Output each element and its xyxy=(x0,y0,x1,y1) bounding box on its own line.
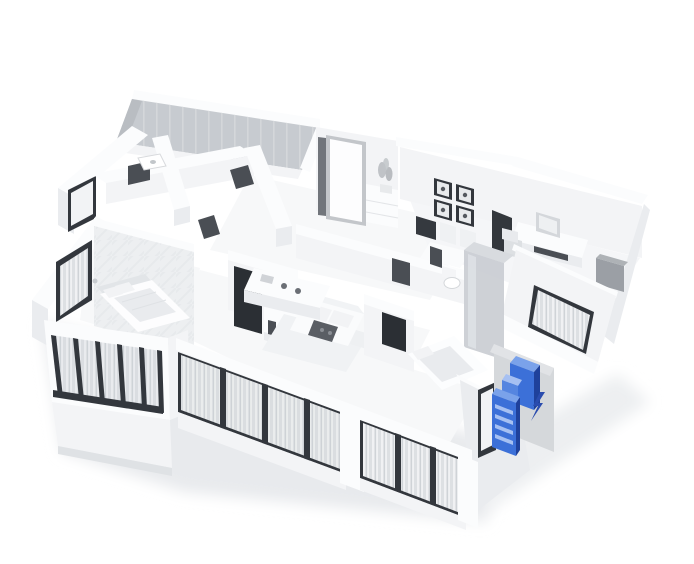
door-shadow-sliver xyxy=(318,137,326,216)
bedside-lamp xyxy=(93,279,98,284)
window-mullion xyxy=(304,398,310,461)
facade-corner-pier xyxy=(458,454,478,528)
picture-motif xyxy=(441,208,445,212)
plant-leaf-3 xyxy=(383,158,389,170)
table-item-2 xyxy=(328,331,332,335)
picture-motif xyxy=(463,214,467,218)
table-item xyxy=(320,328,324,332)
cooktop-burner-2 xyxy=(295,288,301,294)
floorplan-svg xyxy=(0,0,694,564)
cooktop-burner xyxy=(281,283,287,289)
bb-side-window xyxy=(481,388,493,451)
entry xyxy=(316,127,398,228)
partition-face-3 xyxy=(276,226,292,247)
drawer-side[interactable] xyxy=(516,397,520,456)
balcony xyxy=(44,320,190,476)
window-mullion xyxy=(220,367,226,430)
window-mullion xyxy=(430,446,436,505)
picture-motif xyxy=(463,193,467,197)
toilet xyxy=(444,278,460,289)
floorplan-render xyxy=(0,0,694,564)
window-mullion xyxy=(262,383,268,446)
window-mullion xyxy=(395,433,401,492)
door-opening-3 xyxy=(198,215,220,239)
shower-highlight xyxy=(468,254,476,349)
picture-motif xyxy=(441,187,445,191)
entry-door xyxy=(330,139,362,222)
sink-basin xyxy=(150,160,156,164)
